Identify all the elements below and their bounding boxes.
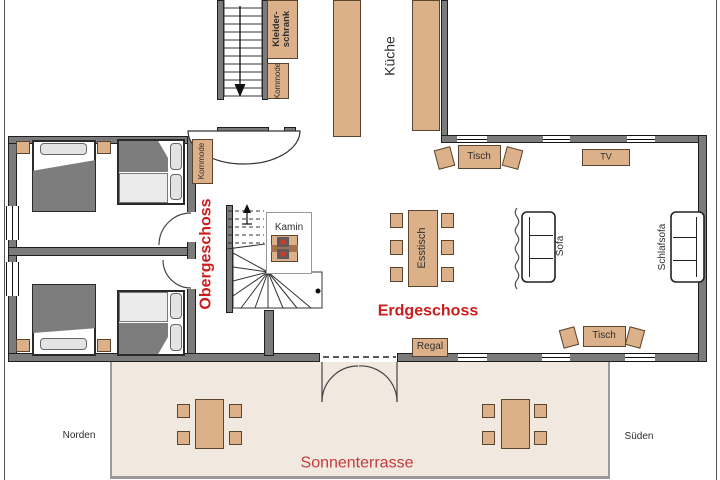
label-wardrobe: Kleider- schrank: [272, 11, 292, 47]
bedroom2-door-arc: [163, 260, 191, 288]
sofa-icon: [522, 212, 555, 282]
pillow: [170, 143, 182, 170]
nightstand: [97, 339, 111, 352]
stairs-dashed-run: [228, 211, 264, 243]
label-kitchen: Küche: [383, 36, 398, 76]
kitchen-counter: [412, 0, 440, 131]
chair: [390, 240, 403, 255]
label-ground-floor: Erdgeschoss: [378, 304, 478, 321]
bed-mattress: [119, 173, 168, 203]
label-shelf: Regal: [417, 342, 443, 353]
chair: [441, 240, 454, 255]
chair: [441, 267, 454, 282]
label-table-top: Tisch: [467, 152, 491, 163]
terrace-table: [501, 399, 530, 449]
label-sofa: Sofa: [556, 236, 567, 257]
nightstand: [16, 339, 30, 352]
pillow: [40, 143, 87, 155]
chair: [229, 431, 242, 445]
chair: [534, 431, 547, 445]
chair: [534, 404, 547, 418]
chair: [482, 404, 495, 418]
pillow: [40, 338, 87, 350]
terrace-french-doors: [322, 362, 397, 402]
stairs-walkline-dot: [316, 289, 321, 294]
chair: [390, 267, 403, 282]
chair: [229, 404, 242, 418]
pillow: [170, 324, 182, 351]
label-dresser-bedroom: Kommode: [198, 143, 206, 179]
stairs-down-arrow-icon: [235, 6, 246, 97]
nightstand: [16, 141, 30, 154]
fireplace-icon: [280, 251, 286, 257]
label-fireplace: Kamin: [275, 223, 303, 234]
chair: [482, 431, 495, 445]
label-tv: TV: [600, 152, 612, 161]
label-upper-floor: Obergeschoss: [199, 198, 216, 309]
label-dresser-hall: Kommode: [274, 63, 282, 99]
floor-plan: Küche Kleider- schrank Kommode Kommode O…: [0, 0, 720, 480]
pillow: [170, 174, 182, 200]
label-table-bottom: Tisch: [592, 331, 616, 342]
stairs-up-arrow-icon: [242, 204, 252, 224]
bedroom1-door-arc: [159, 213, 191, 245]
chair: [177, 431, 190, 445]
pillow: [170, 293, 182, 319]
bed-blanket: [119, 323, 168, 354]
nightstand: [97, 141, 111, 154]
sleeper-sofa-icon: [671, 212, 704, 282]
label-north: Norden: [63, 431, 96, 442]
bed-blanket: [119, 141, 168, 172]
radiator-wave-icon: [515, 208, 519, 289]
label-dining-table: Esstisch: [417, 228, 429, 269]
label-sleeper-sofa: Schlafsofa: [658, 224, 669, 271]
terrace-table: [195, 399, 224, 449]
bed-blanket: [33, 285, 95, 333]
kitchen-counter: [333, 0, 361, 137]
stairs-upper-flight: [224, 0, 262, 97]
label-terrace: Sonnenterrasse: [301, 456, 414, 473]
chair: [177, 404, 190, 418]
fireplace-icon: [280, 239, 286, 245]
chair: [441, 213, 454, 228]
bed-mattress: [119, 292, 168, 322]
label-south: Süden: [625, 432, 654, 443]
chair: [390, 213, 403, 228]
